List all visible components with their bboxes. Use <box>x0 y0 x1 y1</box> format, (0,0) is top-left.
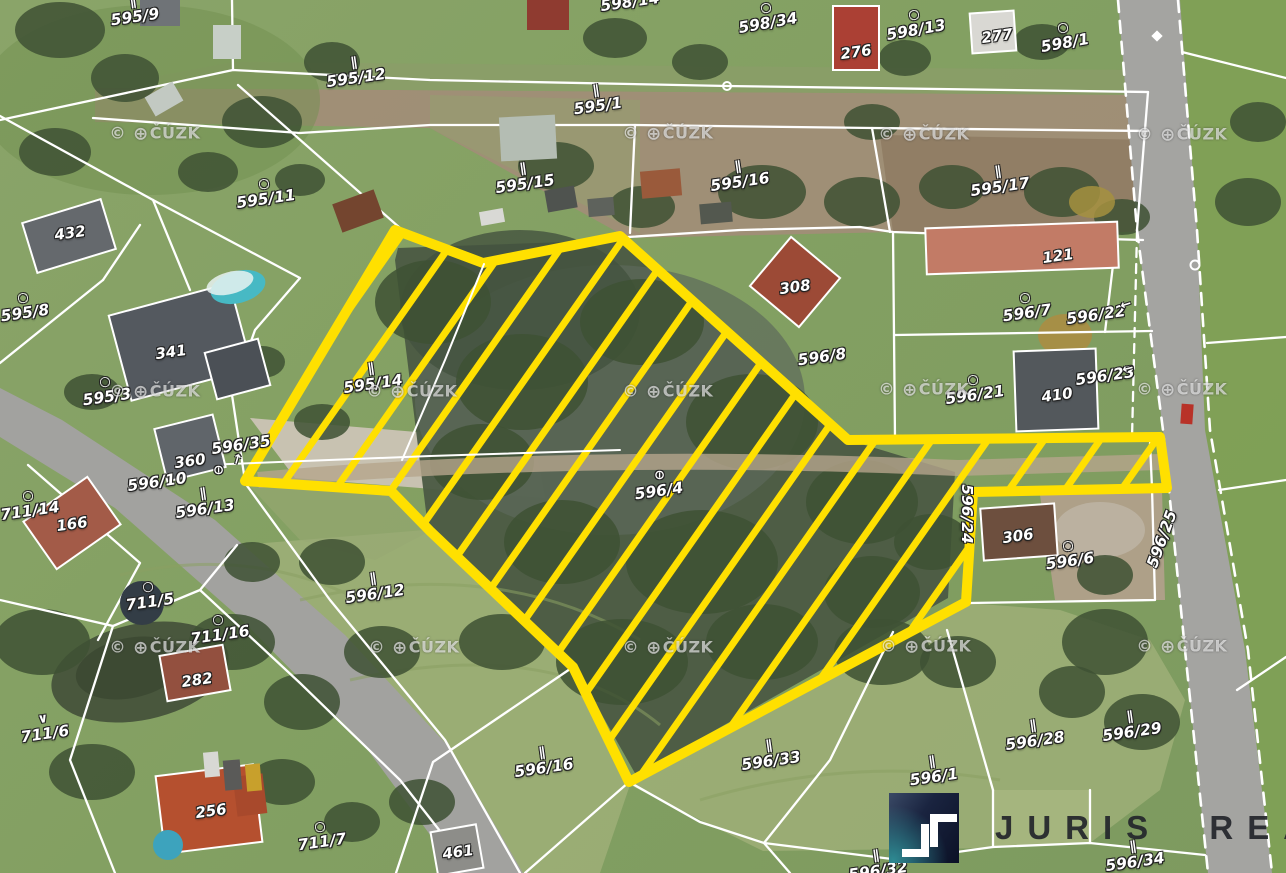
logo-monogram-icon <box>930 814 957 847</box>
building-footprint <box>833 6 879 70</box>
vehicle <box>203 751 220 777</box>
building-footprint <box>213 25 241 59</box>
vehicle <box>223 759 243 790</box>
building-footprint <box>22 199 116 273</box>
juris-real-logo <box>889 793 959 863</box>
building-footprint <box>699 202 733 225</box>
building-footprint <box>499 115 557 162</box>
vehicle <box>1180 404 1193 425</box>
building-footprint <box>587 197 614 217</box>
brand-wordmark: JURIS REAL <box>995 809 1286 847</box>
building-footprint <box>431 824 484 873</box>
building-footprint <box>970 11 1017 54</box>
building-footprint <box>154 415 225 482</box>
building-footprint <box>750 237 840 327</box>
building-footprint <box>159 645 230 701</box>
building-footprint <box>1014 349 1099 432</box>
vehicle <box>245 763 262 791</box>
aerial-map-graphics <box>0 0 1286 873</box>
building-footprint <box>980 503 1057 560</box>
building-footprint <box>640 168 682 198</box>
logo-monogram-icon <box>902 824 929 857</box>
building-footprint <box>332 189 384 232</box>
building-footprint <box>140 0 180 26</box>
cadastral-map: 595/9∥598/14598/34○598/13○598/1○595/12∥5… <box>0 0 1286 873</box>
building-footprint <box>925 222 1118 275</box>
building-footprint <box>479 208 505 226</box>
building-footprint <box>527 0 569 30</box>
